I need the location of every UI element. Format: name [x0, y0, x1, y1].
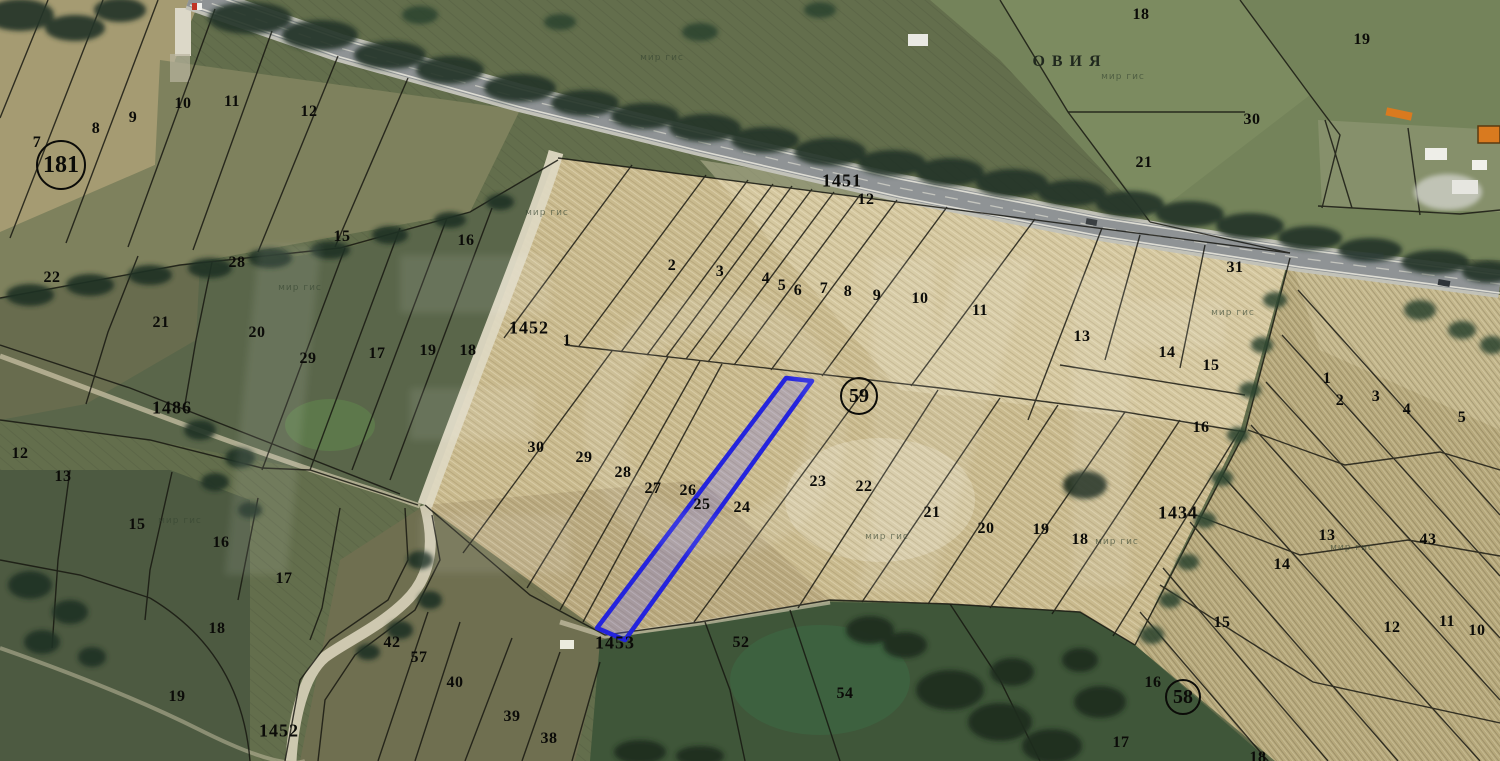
- field-regions: [0, 0, 1500, 761]
- orange-building: [1478, 126, 1500, 143]
- satellite-cadastre-map[interactable]: ОВИЯ 78910111222282120151629171918121315…: [0, 0, 1500, 761]
- place-label: ОВИЯ: [1032, 53, 1107, 71]
- map-canvas: [0, 0, 1500, 761]
